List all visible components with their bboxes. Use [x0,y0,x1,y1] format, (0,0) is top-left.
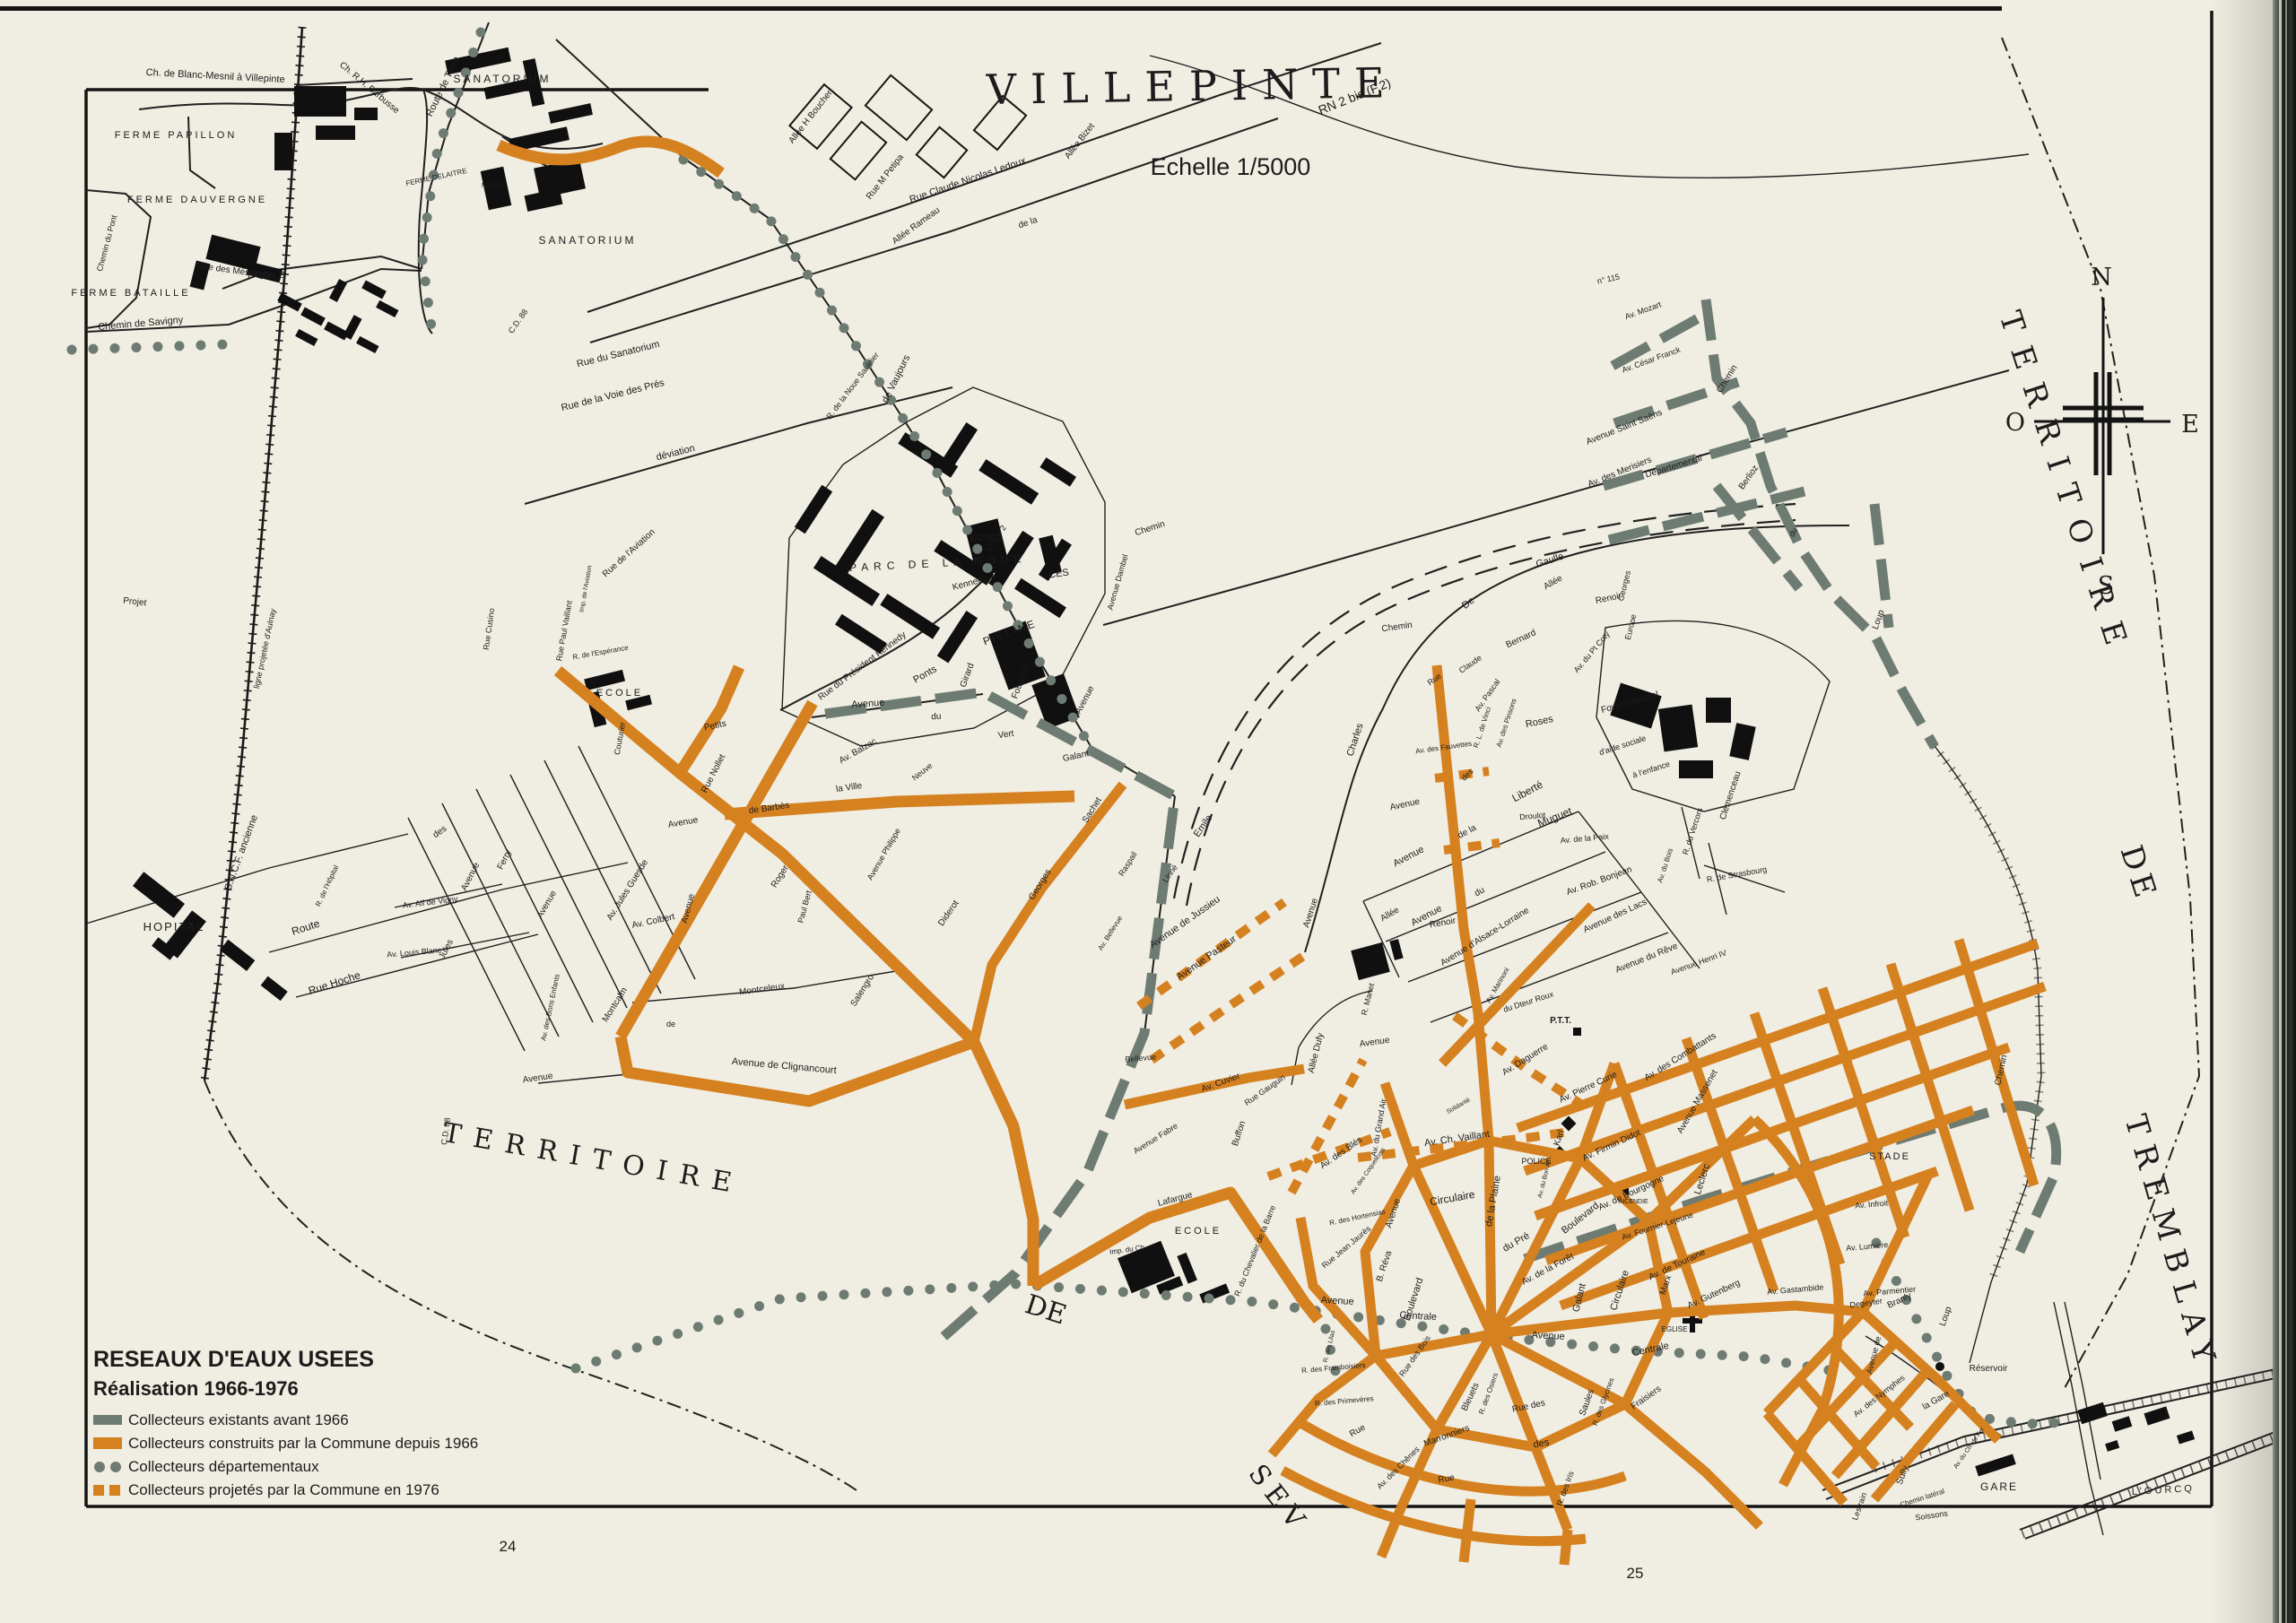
map-label: SANATORIUM [539,234,637,247]
map-label: R. de l'Hôpital [314,864,340,907]
map-label: Allée Bizet [1063,121,1097,161]
map-label: Rue du Sanatorium [576,339,661,370]
map-label: Roses [1525,714,1554,730]
map-label: Chemin de Savigny [98,315,185,333]
map-label: CES [1048,568,1070,581]
map-label: Jules [438,938,456,961]
legend-title: RESEAUX D'EAUX USEES [93,1347,374,1372]
map-label: Avenue Dambel [1106,553,1130,611]
map-label: P.T.T. [1550,1016,1571,1026]
map-label: Avenue [1359,1036,1390,1050]
compass-o: O [2005,409,2025,437]
map-label: DE [1022,1289,1071,1331]
legend-item-label: Collecteurs projetés par la Commune en 1… [128,1481,439,1498]
map-label: POLICE [1521,1157,1551,1166]
map-labels: VILLEPINTEEchelle 1/5000RN 2 bis (F.2)TE… [71,55,2224,1540]
map-label: Av. Jules Guesde [605,858,651,923]
map-label: Avenue Philippe [865,827,902,881]
map-label: Ponts [911,664,939,686]
map-label: Saules [1578,1388,1596,1417]
map-label: Av. Daguerre [1500,1042,1550,1078]
map-label: FERME DAUVERGNE [127,195,267,205]
map-label: Avenue [1074,684,1097,716]
map-label: des [1459,767,1475,783]
map-label: L'OURCQ [2131,1483,2195,1497]
map-label: Rue Cusino [482,608,496,651]
map-label: ECOLE [248,271,287,281]
map-label: Roger [770,864,791,890]
map-label: DE [2113,841,2165,907]
map-label: Claude [1457,653,1483,675]
map-label: TREMBLAY [2117,1111,2224,1377]
map-label: Bernard [1504,628,1537,650]
map-label: Av. Louis Blanc [387,945,442,959]
map-label: Allée [1378,905,1401,924]
map-label: de Vaujours [880,353,912,405]
map-label: Av. Alf de Vigny [402,894,458,910]
map-label: Allée [1542,573,1564,592]
map-label: Avenue de Clignancourt [731,1056,837,1076]
map-label: MAIRIE [482,183,503,189]
collectors-existants [825,299,2057,1343]
map-label: HOPITAL [143,920,205,933]
map-label: de [666,1020,675,1028]
map-label: Avenue [535,889,560,920]
legend-item: Collecteurs projetés par la Commune en 1… [93,1481,439,1498]
map-label: Diderot [936,898,961,928]
map-label: Av. du Grand Air [1369,1098,1387,1158]
map-label: B. Réva [1375,1249,1395,1283]
collectors-departementaux [72,32,2074,1424]
map-label: à l'enfance [1631,759,1671,780]
map-label: Avenue [1531,1330,1565,1342]
legend-item-label: Collecteurs départementaux [128,1458,319,1475]
map-label: Ch. de Blanc-Mesnil à Villepinte [145,67,285,85]
map-label: Allée Dufy [1307,1032,1326,1074]
map-label: Route de Trem [424,55,463,118]
map-label: Couturier [613,721,627,755]
map-label: Avenue Pasteur [1175,933,1239,983]
map-label: ligne projetée d'Aulnay [252,607,278,689]
map-label: Av. du Bois [1656,847,1674,884]
map-label: Rue Hoche [307,968,362,997]
map-label: Avenue Henri IV [1670,948,1728,976]
map-label: INCENDIE [1618,1199,1648,1205]
map-label: ECOLE [1175,1226,1222,1237]
page-number-right: 25 [1627,1565,1644,1582]
map-label: Bellevue [1125,1053,1156,1064]
map-label: Paul Bert [796,890,813,924]
map-label: Av. des Pinsons [1495,698,1518,749]
map-label: Réservoir [1970,1364,2008,1374]
map-label: Rue Paul Vaillant [554,599,574,662]
compass-n: N [2091,264,2112,291]
map-label: Georges [1616,569,1632,602]
map-label: Av. Rob. Bonjean [1565,864,1633,898]
map-label: Av. Mozart [1623,299,1663,321]
map-label: de la [1017,215,1039,231]
map-label: Berlioz [1737,464,1761,491]
map-label: Av. Balzac [838,736,879,766]
map-label: STADE [1869,1151,1910,1162]
map-label: GARE [1980,1480,2018,1493]
map-label: Rue des Bois [1397,1333,1432,1378]
map-label: Avenue [667,815,700,830]
map-label: Av. Infroit [1855,1198,1889,1210]
map-label: Chemin [1134,519,1166,538]
map-label: ECOLE [596,688,643,699]
map-label: la Ville [835,781,863,794]
book-edge [2273,0,2296,1623]
legend-item: Collecteurs existants avant 1966 [93,1411,349,1428]
map-label: R. Manet [1360,982,1377,1016]
road-network [86,22,2296,1539]
map-label: SANATORIUM [454,73,552,85]
map-label: TERRITOIRE [440,1117,746,1201]
map-label: du [1473,885,1486,898]
map-label: Rue [1348,1422,1368,1439]
map-label: Rue Nollet [700,752,727,794]
map-label: COSEC [970,534,1003,543]
map-label: R. de la Noue Saulnier [824,351,880,421]
legend-subtitle: Réalisation 1966-1976 [93,1377,299,1400]
map-label: Imp. de l'Aviation [578,565,593,612]
map-label: de la [1457,823,1479,841]
map-label: Galant [1062,749,1090,764]
legend: RESEAUX D'EAUX USEES Réalisation 1966-19… [93,1347,478,1498]
map-label: du Pré [1500,1230,1531,1254]
map-label: Loup [1938,1305,1954,1327]
compass-e: E [2181,411,2199,438]
map-label: R. des Lilas [1323,1330,1337,1364]
map-label: Route [290,916,321,937]
legend-item-label: Collecteurs existants avant 1966 [128,1411,349,1428]
map-label: Avenue [522,1072,553,1086]
map-label: FERME BATAILLE [71,288,190,299]
map-label: Circulaire [1429,1188,1476,1209]
map-label: des [431,824,449,840]
map-label: d'aide sociale [1598,733,1648,757]
map-label: Vert [997,729,1014,741]
map-label: Av. des Bons Enfants [539,973,561,1041]
map-label: FERME PAPILLON [115,130,238,141]
map-label: Raspail [1117,850,1138,878]
map-label: Avenue Fabre [1132,1121,1179,1155]
map-label: Liberté [1510,778,1545,805]
map-label: Rue de l'Aviation [601,527,657,579]
map-label: R. L. de Vinci [1472,706,1492,749]
map-label: Girard [959,662,977,689]
page-number-left: 24 [500,1538,517,1555]
collectors-commune [499,142,2045,1565]
map-label: Soissons [1915,1508,1949,1522]
map-label: Av. Lumière [1846,1240,1889,1253]
map-label: Départemental [1644,454,1703,481]
map-label: Avenue Saint Saëns [1585,408,1664,447]
map-canvas: N O E S RESEAUX D'EAUX USEES Réalisation… [0,0,2296,1623]
map-label: Solidarité [1446,1097,1472,1115]
map-label: Avenue [1320,1295,1354,1307]
map-label: Buffon [1231,1120,1248,1148]
map-label: Av. du Pt Coty [1572,629,1612,674]
legend-item-label: Collecteurs construits par la Commune de… [128,1435,478,1452]
legend-item: Collecteurs départementaux [94,1458,319,1475]
map-label: du [931,712,942,723]
map-label: Allée Rameau [891,205,942,247]
map-label: SEV [1242,1459,1316,1541]
map-label: Neuve [910,761,935,783]
map-label: n° 115 [1596,273,1621,286]
map-label: Kennedy [952,574,988,593]
map-label: C.D. 88 [507,308,530,335]
map-label: TERRITOIRE [1992,307,2139,664]
map-label: Echelle 1/5000 [1151,153,1311,180]
map-label: EGLISE [1662,1325,1688,1333]
scanned-map-page: N O E S RESEAUX D'EAUX USEES Réalisation… [0,0,2296,1623]
map-label: Chemin [1381,621,1413,635]
page-gutter-shadow [2210,0,2273,1623]
map-label: S.N.C.F. ancienne [222,813,260,891]
map-label: Avenue d'Alsace-Lorraine [1439,906,1531,968]
map-label: Montceleux [739,982,786,998]
map-label: R. des Osiers [1477,1372,1500,1416]
map-label: Chemin du Pont [95,213,118,272]
map-label: Europe [1623,613,1639,641]
railway-sncf [204,27,2199,1490]
map-label: Avenue [1301,897,1320,929]
map-label: Av. de la Paix [1560,832,1609,846]
map-label: R. de l'Espérance [572,644,630,662]
map-label: Muguet [1535,804,1574,829]
map-label: Clémenceau [1718,770,1744,821]
map-label: des [1533,1437,1551,1451]
map-label: Avenue [1391,844,1425,869]
map-label: Rue de la Voie des Prés [561,378,666,413]
map-label: Av. Bellevue [1096,914,1124,951]
map-label: Avenue [1389,797,1422,813]
map-label: Projet [123,596,147,609]
legend-item: Collecteurs construits par la Commune de… [93,1435,478,1452]
